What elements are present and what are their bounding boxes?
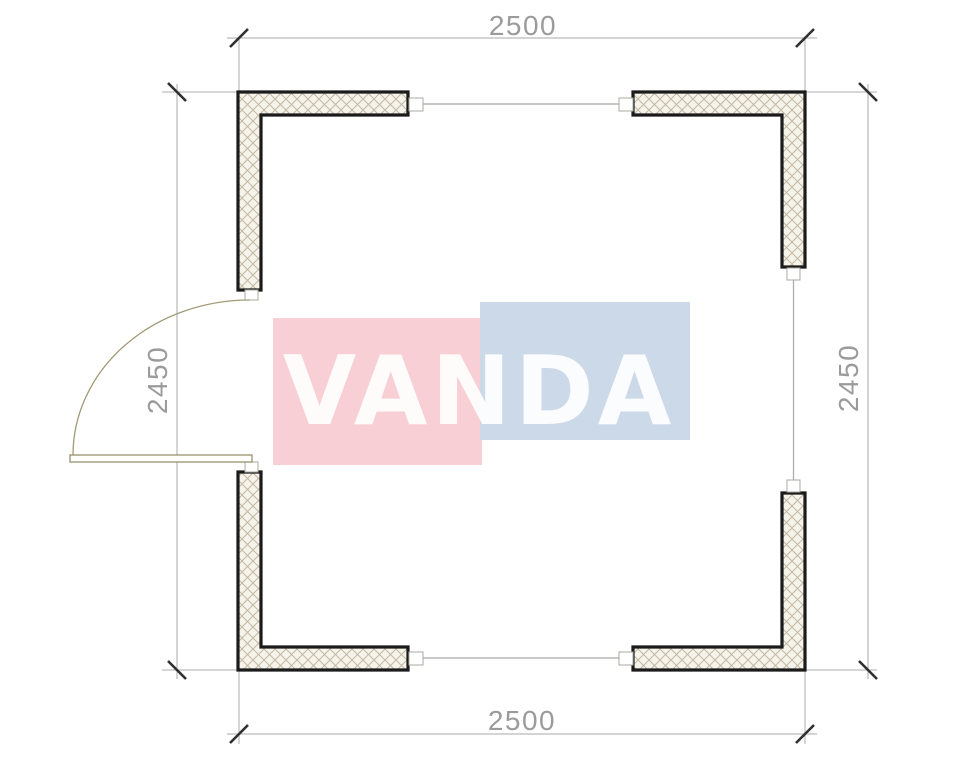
wall-bottom-right	[633, 493, 805, 670]
dimension-label-right: 2450	[833, 344, 864, 412]
dimension-top: 2500	[227, 10, 817, 92]
connector-stub	[409, 652, 423, 665]
connector-stub	[245, 462, 258, 472]
dimension-left: 2450	[142, 83, 238, 679]
connector-stub	[409, 98, 423, 111]
door-leaf	[70, 455, 252, 462]
dimension-label-top: 2500	[489, 10, 557, 41]
watermark-logo-text: VANDA	[283, 337, 676, 447]
dimension-label-left: 2450	[142, 346, 173, 414]
floor-plan-canvas: 2500 2500 2450 2450	[0, 0, 960, 768]
connector-stub	[619, 652, 633, 665]
connector-stub	[245, 290, 258, 300]
connector-stub	[787, 268, 800, 280]
wall-bottom-left	[238, 472, 408, 670]
dimension-bottom: 2500	[227, 670, 817, 744]
dimension-right: 2450	[805, 83, 877, 679]
watermark: VANDA	[273, 302, 690, 465]
connector-stub	[619, 98, 633, 111]
floor-plan-page: 2500 2500 2450 2450	[0, 0, 960, 768]
wall-top-left	[238, 92, 408, 290]
dimension-label-bottom: 2500	[488, 705, 556, 736]
connector-stub	[787, 480, 800, 492]
wall-top-right	[633, 92, 805, 267]
